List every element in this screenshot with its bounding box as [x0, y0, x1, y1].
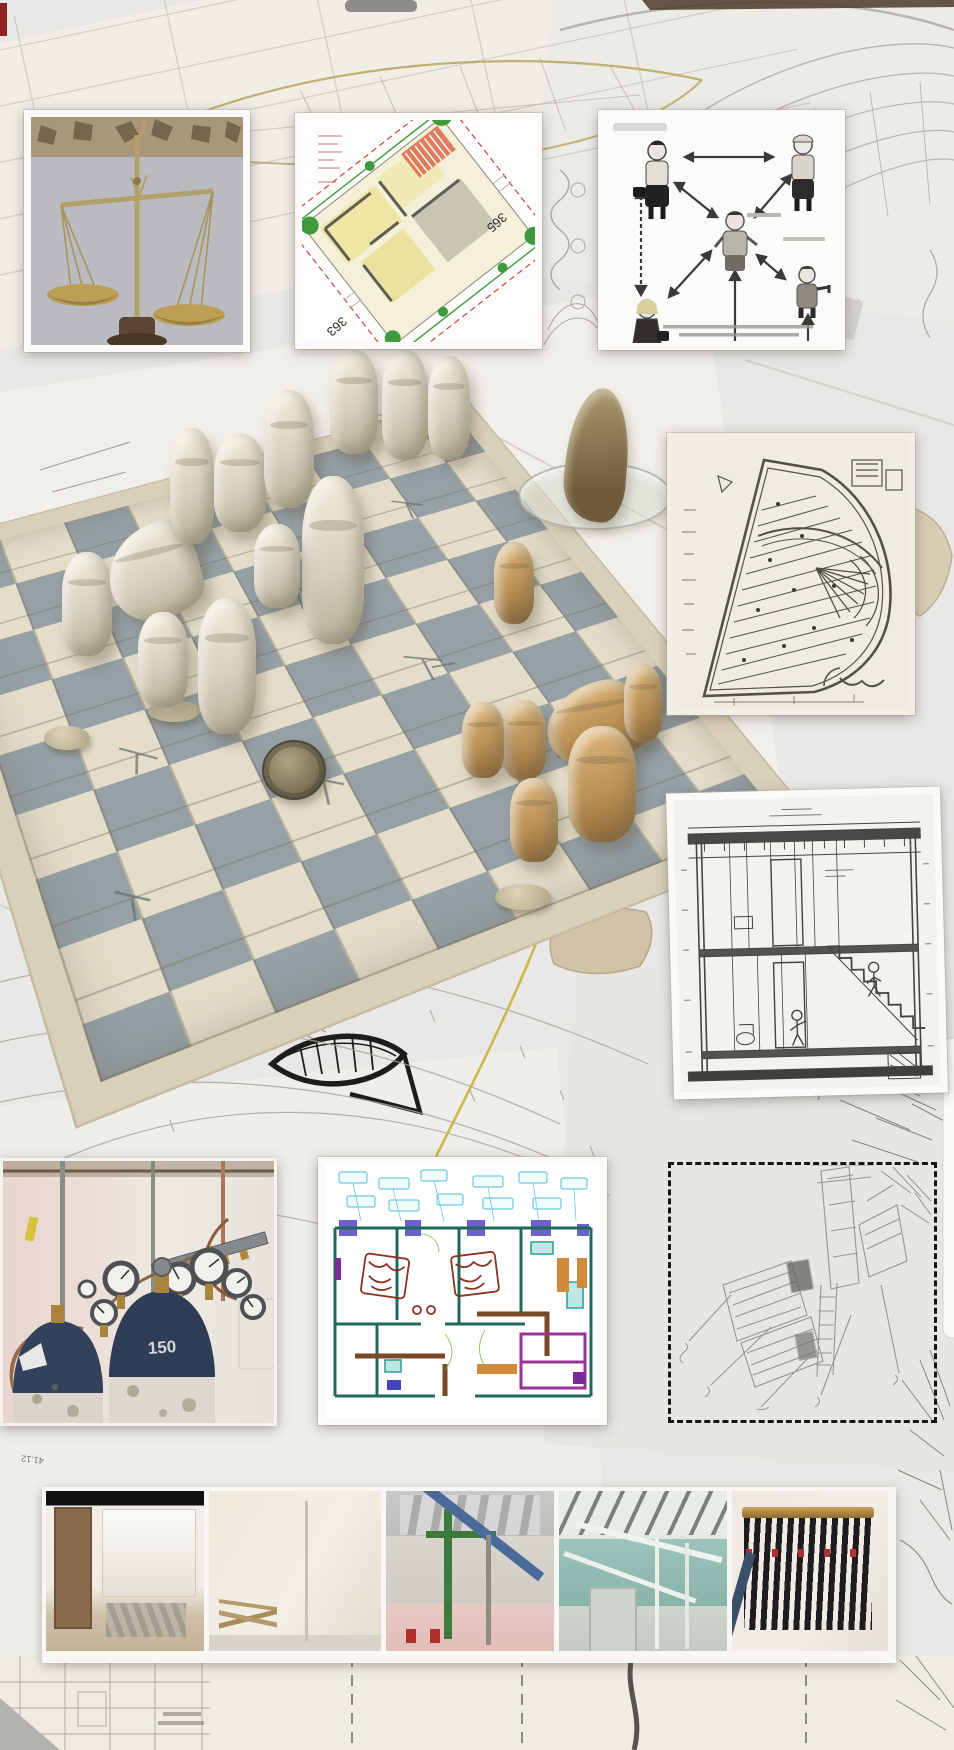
cylinder-number-label: 150 [147, 1337, 177, 1358]
white-chess-piece [254, 524, 300, 608]
site-plan-tile: 365 363 [295, 113, 542, 349]
stud [655, 1537, 659, 1649]
white-bust-piece [214, 434, 266, 532]
site-plan-drawing: 365 363 [302, 120, 535, 342]
white-figure-piece [170, 428, 214, 544]
diagram-caption [663, 325, 813, 329]
people-diagram [605, 117, 838, 343]
photo-plaster-wall [209, 1491, 381, 1651]
white-chess-piece [302, 476, 364, 644]
scales-photo [31, 117, 243, 345]
workbench [589, 1587, 637, 1651]
bottom-blueprint-band [0, 1656, 954, 1750]
white-chess-piece [428, 356, 470, 460]
door [54, 1507, 92, 1629]
diagram-caption [679, 333, 799, 337]
photo-hallway-demolition [46, 1491, 204, 1651]
people-diagram-tile [598, 110, 845, 350]
red-sliver [0, 3, 7, 36]
valve [406, 1629, 416, 1643]
fan-plan-tile [667, 433, 915, 715]
scales-photo-tile [24, 110, 250, 352]
brass-manifold [742, 1507, 874, 1518]
diagram-label [783, 237, 825, 241]
bronze-coin [262, 740, 326, 800]
tan-king-piece [568, 726, 636, 842]
collage-canvas: 110 [0, 0, 954, 1750]
section-drawing-tile [666, 786, 948, 1099]
white-chess-piece [198, 598, 256, 734]
stud [685, 1543, 689, 1649]
tan-pawn-piece [502, 700, 546, 780]
apartment-plan-drawing [325, 1164, 600, 1418]
red-valve-handles [746, 1549, 870, 1557]
renovation-photo-strip [42, 1487, 896, 1663]
tan-pawn-piece [494, 542, 534, 624]
diagram-label [747, 213, 781, 217]
gas-cylinders-photo: 150 [0, 1158, 277, 1426]
apartment-plan-tile [318, 1157, 607, 1425]
white-chess-piece [264, 390, 314, 508]
white-helmet-piece [138, 612, 188, 708]
board-foot [44, 726, 90, 750]
wall-seam [305, 1501, 308, 1641]
photo-pipes-install [386, 1491, 554, 1651]
conduit [486, 1535, 491, 1645]
tan-pawn-piece [510, 778, 558, 862]
valve [430, 1629, 440, 1643]
photo-framing-room [559, 1491, 727, 1651]
dashed-selection-box [668, 1162, 937, 1423]
tan-chess-piece [624, 664, 662, 742]
white-rook-piece [382, 350, 428, 460]
photo-cable-manifold [732, 1491, 888, 1651]
gray-blob [345, 0, 417, 12]
board-foot [495, 884, 551, 910]
fan-plan-drawing [674, 440, 908, 708]
hanging-cables [744, 1518, 872, 1630]
floor [209, 1635, 381, 1651]
tan-pawn-piece [462, 702, 504, 778]
debris-pile [106, 1603, 186, 1637]
axonometric-sketch [671, 1165, 934, 1414]
green-pipe [444, 1509, 452, 1639]
section-drawing [673, 794, 941, 1093]
white-chess-piece [62, 552, 112, 656]
white-chess-piece [330, 350, 378, 454]
cabinet-wall [102, 1509, 196, 1597]
